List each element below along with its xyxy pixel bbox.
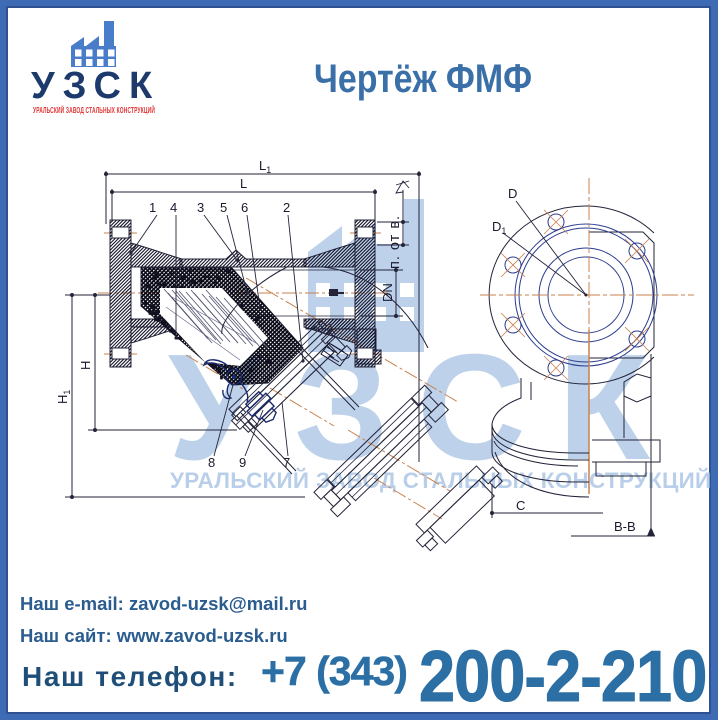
svg-text:2: 2 (283, 200, 290, 215)
svg-text:D: D (508, 186, 517, 201)
svg-text:L: L (240, 176, 247, 191)
svg-text:4: 4 (170, 200, 177, 215)
svg-text:6: 6 (241, 200, 248, 215)
svg-text:5: 5 (220, 200, 227, 215)
svg-text:п. от в.: п. от в. (387, 215, 403, 269)
svg-text:DN: DN (380, 283, 395, 302)
svg-text:D1: D1 (492, 219, 506, 236)
svg-text:8: 8 (208, 455, 215, 470)
svg-text:L1: L1 (259, 158, 271, 175)
svg-text:H: H (78, 361, 93, 370)
svg-text:3: 3 (197, 200, 204, 215)
svg-text:УРАЛЬСКИЙ ЗАВОД СТАЛЬНЫХ КОНСТ: УРАЛЬСКИЙ ЗАВОД СТАЛЬНЫХ КОНСТРУКЦИЙ (170, 468, 711, 493)
svg-text:В-В: В-В (614, 519, 636, 534)
svg-text:1: 1 (149, 200, 156, 215)
svg-text:9: 9 (239, 455, 246, 470)
svg-text:C: C (516, 498, 525, 513)
svg-text:7: 7 (283, 455, 290, 470)
svg-text:H1: H1 (55, 390, 72, 404)
